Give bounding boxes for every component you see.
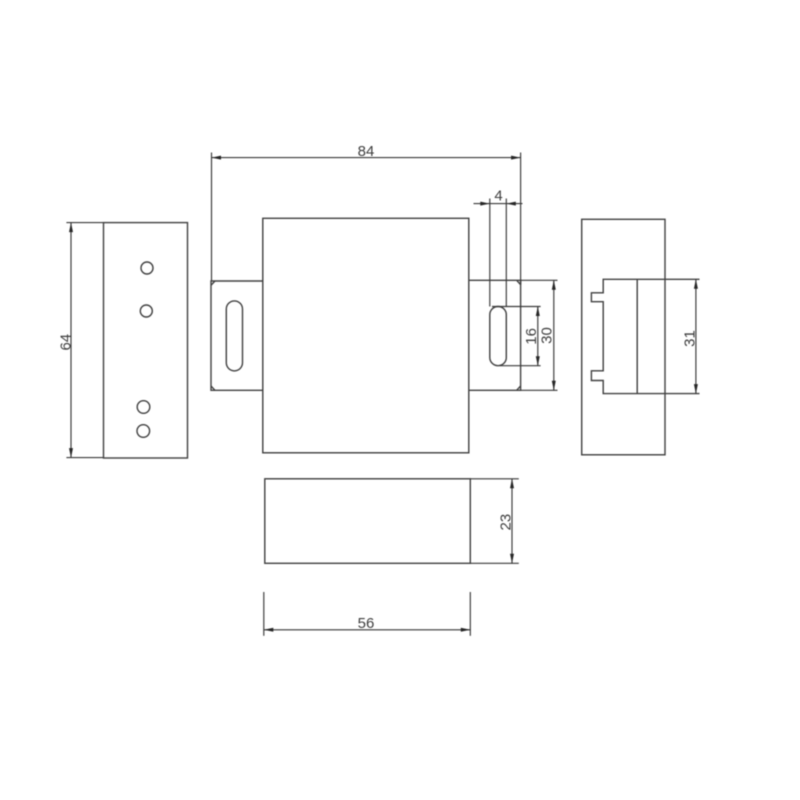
- svg-text:31: 31: [681, 330, 698, 347]
- svg-text:16: 16: [523, 328, 540, 345]
- svg-text:23: 23: [497, 514, 514, 531]
- svg-text:30: 30: [538, 327, 555, 344]
- svg-text:64: 64: [58, 334, 75, 351]
- svg-text:56: 56: [358, 615, 375, 632]
- svg-text:4: 4: [494, 188, 502, 205]
- svg-text:84: 84: [358, 143, 375, 160]
